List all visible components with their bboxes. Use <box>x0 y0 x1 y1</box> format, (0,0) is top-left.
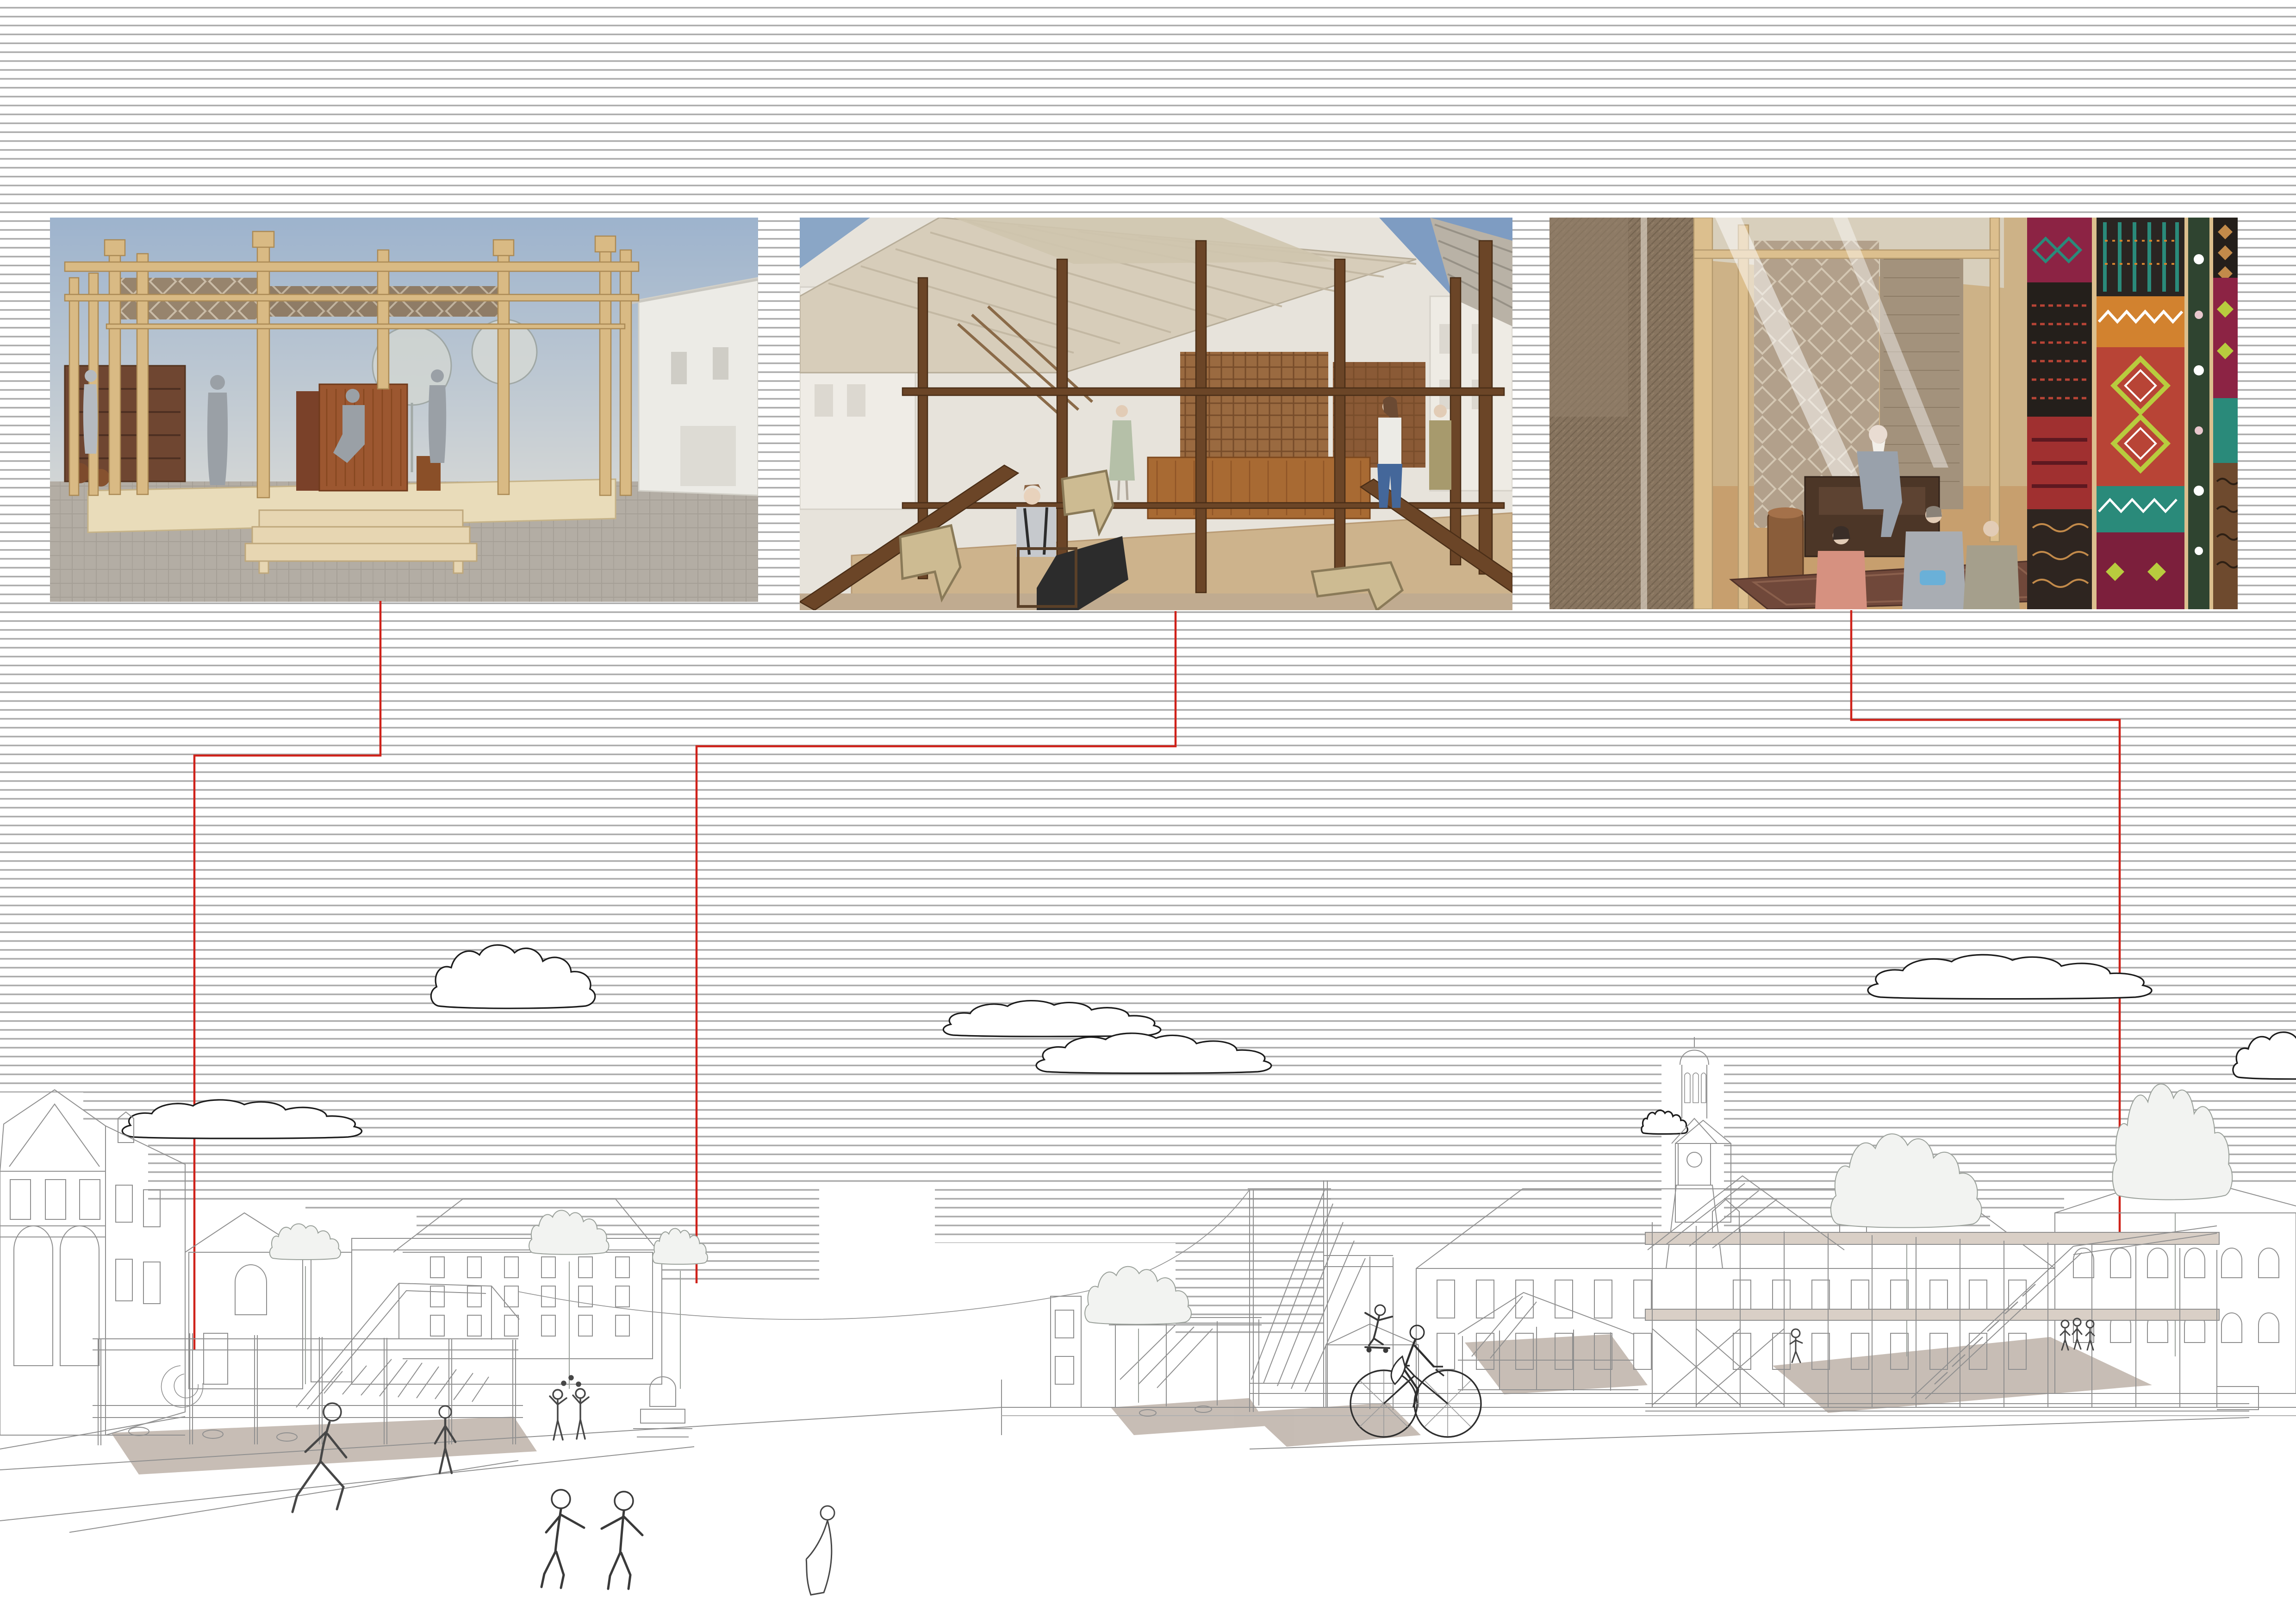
shelving-unit <box>65 366 185 487</box>
woven-screen-wall <box>1549 218 1694 609</box>
fountain <box>633 1377 692 1437</box>
children-figures <box>541 1490 642 1589</box>
presentation-board <box>0 0 2296 1624</box>
cast-shadows <box>111 1334 2152 1474</box>
left-edge-building-right-group <box>1051 1296 1081 1407</box>
board-canvas <box>0 0 2296 1624</box>
render-exterior-street-pavilion <box>50 218 758 602</box>
white-building <box>630 278 758 495</box>
seated-figure <box>806 1506 834 1595</box>
hanging-textiles-wall <box>2027 218 2239 609</box>
render-terrace-under-canopy <box>800 218 1512 610</box>
render-interior-textile-gallery <box>1549 218 2239 609</box>
wood-drum <box>1768 507 1803 579</box>
